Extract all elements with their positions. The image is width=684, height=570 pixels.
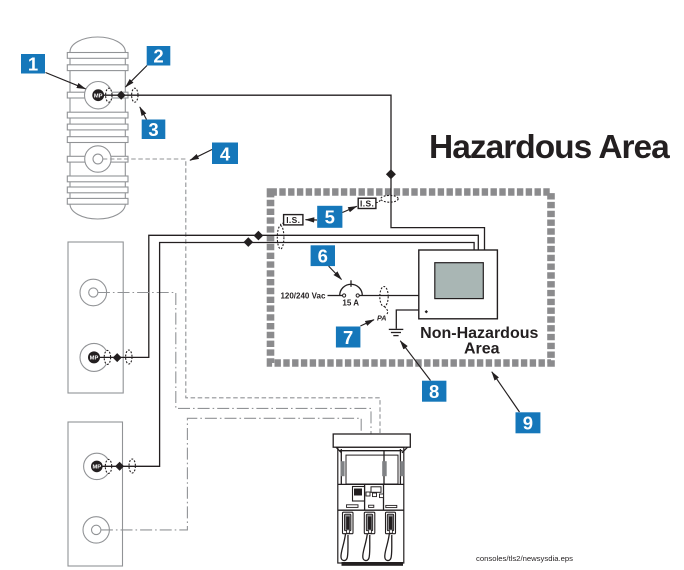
svg-text:6: 6	[318, 245, 328, 266]
svg-text:Hazardous Area: Hazardous Area	[429, 129, 670, 166]
svg-text:8: 8	[429, 381, 439, 402]
svg-text:consoles/tls2/newsysdia.eps: consoles/tls2/newsysdia.eps	[476, 554, 573, 563]
svg-text:MP: MP	[90, 356, 99, 362]
svg-text:7: 7	[343, 327, 353, 348]
svg-text:5: 5	[325, 207, 335, 228]
svg-text:3: 3	[148, 119, 158, 140]
svg-text:9: 9	[523, 413, 533, 434]
svg-text:PA: PA	[377, 313, 386, 322]
svg-text:1: 1	[28, 53, 38, 74]
svg-text:Non-Hazardous: Non-Hazardous	[420, 325, 538, 342]
svg-text:MP: MP	[94, 93, 103, 99]
svg-text:MP: MP	[92, 465, 101, 471]
svg-text:Area: Area	[464, 341, 500, 358]
svg-text:I.S.: I.S.	[286, 215, 300, 225]
svg-text:4: 4	[220, 143, 231, 164]
svg-text:15 A: 15 A	[342, 299, 359, 308]
svg-text:2: 2	[153, 45, 163, 66]
svg-text:I.S.: I.S.	[360, 199, 374, 209]
svg-text:120/240 Vac: 120/240 Vac	[280, 291, 325, 300]
